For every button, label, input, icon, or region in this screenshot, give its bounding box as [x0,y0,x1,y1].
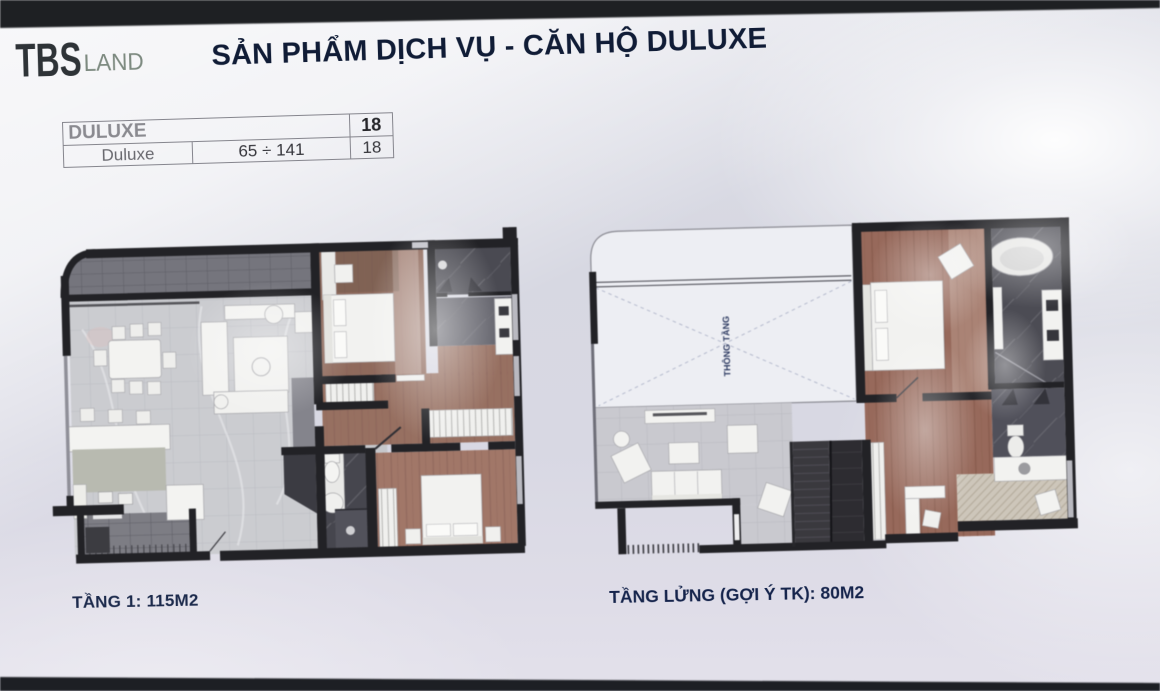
svg-text:TBS: TBS [15,32,82,87]
svg-text:LAND: LAND [83,48,144,77]
svg-text:THÔNG TẦNG: THÔNG TẦNG [720,316,733,377]
